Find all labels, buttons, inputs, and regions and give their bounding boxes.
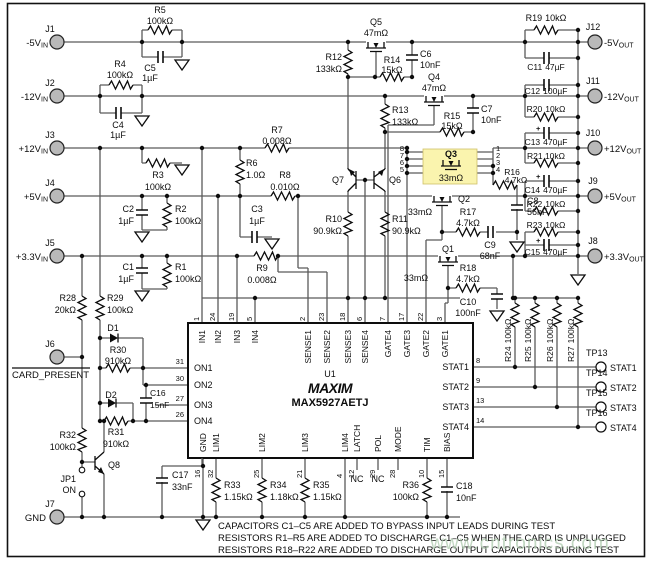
r8-ref: R8 — [279, 170, 291, 180]
note-line-1: CAPACITORS C1–C5 ARE ADDED TO BYPASS INP… — [218, 521, 555, 532]
ground-icon — [135, 116, 149, 126]
tp14-ref: TP14 — [586, 368, 608, 378]
circuit-schematic: J1 -5VIN J2 -12VIN J3 +12VIN J4 +5VIN J5… — [0, 0, 650, 563]
tp14-sig: STAT2 — [610, 383, 637, 393]
r34-val: 1.18kΩ — [270, 492, 299, 502]
r32-ref: R32 — [59, 430, 76, 440]
connector-j3 — [50, 141, 64, 155]
gnd-label: GND — [25, 513, 46, 524]
pin-name-gate4: GATE4 — [383, 330, 393, 358]
q7-ref: Q7 — [332, 175, 344, 185]
r8-val: 0.010Ω — [270, 182, 300, 192]
connector-j9 — [588, 189, 602, 203]
nc-label-latch: NC — [351, 474, 364, 484]
j9-ref: J9 — [588, 176, 598, 186]
c13-polarity: + — [536, 124, 541, 133]
c1-val: 1µF — [118, 274, 134, 284]
j8-label: +3.3VOUT — [604, 252, 645, 264]
pin-name-in2: IN2 — [213, 330, 223, 344]
r9-val: 0.008Ω — [247, 275, 277, 285]
ground-icon — [490, 311, 504, 321]
c9-ref: C9 — [484, 240, 496, 250]
schematic-page: J1 -5VIN J2 -12VIN J3 +12VIN J4 +5VIN J5… — [0, 0, 650, 563]
pin-num-9: 9 — [476, 376, 480, 385]
pin-num-25: 25 — [252, 470, 261, 478]
tp15-sig: STAT3 — [610, 403, 637, 413]
tp16-sig: STAT4 — [610, 423, 637, 433]
r18-val: 4.7kΩ — [456, 274, 480, 284]
jumper-jp1 — [79, 467, 85, 497]
q8-ref: Q8 — [108, 460, 120, 470]
diode-d1 — [110, 334, 118, 343]
pin-name-on2: ON2 — [194, 380, 213, 390]
c12-label: C12100µF — [525, 86, 568, 96]
r11-val: 90.9kΩ — [392, 226, 421, 236]
r22-label: R2210kΩ — [527, 199, 566, 209]
r15-val: 15kΩ — [441, 121, 463, 131]
r35-ref: R35 — [313, 480, 330, 490]
connector-j11 — [588, 89, 602, 103]
connector-j6 — [50, 350, 64, 364]
pin-name-stat1: STAT1 — [442, 362, 469, 372]
tp13-ref: TP13 — [586, 348, 608, 358]
pin-num-5: 5 — [245, 317, 254, 321]
c17-ref: C17 — [172, 470, 189, 480]
j5-ref: J5 — [45, 238, 55, 248]
c4-ref: C4 — [112, 120, 124, 130]
r19-label: R1910kΩ — [526, 13, 567, 23]
pin-num-3: 3 — [435, 317, 444, 321]
j6-ref: J6 — [45, 339, 55, 349]
q2-val: 33mΩ — [408, 207, 433, 217]
pin-num-8: 8 — [476, 356, 480, 365]
j2-ref: J2 — [45, 78, 55, 88]
pin-num-27: 27 — [176, 394, 184, 403]
q4-val: 47mΩ — [422, 83, 447, 93]
r12-ref: R12 — [325, 52, 342, 62]
pin-name-lim3: LIM3 — [300, 433, 310, 452]
q5-ref: Q5 — [370, 17, 382, 27]
r14-val: 15kΩ — [381, 65, 403, 75]
connector-j8 — [588, 249, 602, 263]
pin-name-gate1: GATE1 — [440, 330, 450, 358]
r12-val: 133kΩ — [316, 64, 343, 74]
c10-ref: C10 — [460, 297, 477, 307]
pin-name-lim2: LIM2 — [257, 433, 267, 452]
j10-ref: J10 — [586, 128, 601, 138]
ground-icon — [135, 291, 149, 301]
pin-name-gate2: GATE2 — [421, 330, 431, 358]
r28-val: 20kΩ — [55, 305, 77, 315]
r1-val: 100kΩ — [175, 274, 202, 284]
r36-ref: R36 — [402, 480, 419, 490]
connector-j4 — [50, 189, 64, 203]
d1-ref: D1 — [107, 323, 119, 333]
r5-val: 100kΩ — [147, 16, 174, 26]
ground-icon — [196, 520, 210, 530]
r2-ref: R2 — [175, 204, 187, 214]
q2-ref: Q2 — [458, 194, 470, 204]
r5-ref: R5 — [154, 5, 166, 15]
r34-ref: R34 — [270, 480, 287, 490]
r1-ref: R1 — [175, 262, 187, 272]
pin-num-31: 31 — [176, 357, 184, 366]
nc-label-pol: NC — [372, 474, 385, 484]
pin-name-gnd: GND — [198, 433, 208, 452]
r29-ref: R29 — [107, 293, 124, 303]
q1-ref: Q1 — [442, 244, 454, 254]
pin-num-30: 30 — [176, 374, 184, 383]
pin-num-4: 4 — [335, 474, 344, 478]
pin-num-21: 21 — [295, 470, 304, 478]
c18-ref: C18 — [456, 481, 473, 491]
pin-name-in3: IN3 — [232, 330, 242, 344]
pin-name-stat2: STAT2 — [442, 382, 469, 392]
c3-val: 1µF — [249, 216, 265, 226]
c13-label: C13470µF — [525, 137, 568, 147]
mosfet-q5 — [366, 42, 386, 52]
mosfet-q4 — [424, 96, 444, 106]
r24-label: R24100kΩ — [503, 319, 513, 362]
pin-name-mode: MODE — [393, 426, 403, 452]
output-connectors — [588, 35, 602, 263]
tp16-ref: TP16 — [586, 408, 608, 418]
j10-label: +12VOUT — [604, 144, 642, 156]
connector-j2 — [50, 89, 64, 103]
q3-pin-4: 4 — [496, 165, 500, 174]
c4-val: 1µF — [110, 130, 126, 140]
q3-val: 33mΩ — [439, 173, 464, 183]
c18-val: 10nF — [456, 493, 477, 503]
pin-name-on3: ON3 — [194, 400, 213, 410]
c6-ref: C6 — [420, 49, 432, 59]
pin-name-in1: IN1 — [197, 330, 207, 344]
j3-ref: J3 — [45, 130, 55, 140]
r4-val: 100kΩ — [107, 70, 134, 80]
connector-j1 — [50, 35, 64, 49]
connector-j12 — [588, 35, 602, 49]
pin-num-16: 16 — [193, 470, 202, 478]
pin-name-sense2: SENSE2 — [322, 330, 332, 364]
r16-val: 4.7kΩ — [505, 175, 527, 185]
ground-icon — [135, 232, 149, 242]
r35-val: 1.15kΩ — [313, 492, 342, 502]
r29-val: 100kΩ — [107, 305, 134, 315]
c15-label: C15470µF — [525, 247, 568, 257]
r10-val: 90.9kΩ — [313, 226, 342, 236]
r20-label: R2010kΩ — [527, 104, 566, 114]
c2-ref: C2 — [122, 204, 134, 214]
c1-ref: C1 — [122, 262, 134, 272]
r33-ref: R33 — [224, 480, 241, 490]
r30-val: 910kΩ — [105, 356, 132, 366]
q4-ref: Q4 — [428, 72, 440, 82]
maxim-logo: MAXIM — [308, 380, 353, 396]
ground-icon — [175, 165, 189, 175]
pin-name-sense4: SENSE4 — [360, 330, 370, 364]
r36-val: 100kΩ — [393, 492, 420, 502]
ic-ref: U1 — [324, 369, 336, 379]
j3-label: +12VIN — [19, 144, 48, 156]
c10-val: 100nF — [455, 308, 481, 318]
c14-polarity: + — [536, 172, 541, 181]
pin-name-on4: ON4 — [194, 416, 213, 426]
ground-icon — [571, 275, 585, 285]
r3-ref: R3 — [152, 170, 164, 180]
j7-ref: J7 — [45, 499, 55, 509]
c5-val: 1µF — [142, 73, 158, 83]
testpoint-labels: TP13 STAT1 TP14 STAT2 TP15 STAT3 TP16 ST… — [586, 348, 637, 433]
r32-val: 100kΩ — [50, 442, 77, 452]
mosfet-q2 — [432, 196, 452, 206]
watermark: www.cntronics.com — [429, 533, 610, 554]
r10-ref: R10 — [325, 214, 342, 224]
r6-ref: R6 — [246, 158, 258, 168]
ground-icon — [510, 242, 524, 252]
pin-name-stat3: STAT3 — [442, 402, 469, 412]
r9-ref: R9 — [256, 263, 268, 273]
j9-label: +5VOUT — [604, 192, 637, 204]
r13-ref: R13 — [392, 105, 409, 115]
r18-ref: R18 — [460, 263, 477, 273]
c14-label: C14470µF — [525, 185, 568, 195]
r31-ref: R31 — [108, 427, 125, 437]
r25-label: R25100kΩ — [523, 319, 533, 362]
r17-val: 4.7kΩ — [456, 218, 480, 228]
q1-val: 33mΩ — [404, 273, 429, 283]
c5-ref: C5 — [144, 63, 156, 73]
pin-num-26: 26 — [176, 410, 184, 419]
c9-val: 68nF — [480, 251, 501, 261]
q3-pin-5: 5 — [400, 165, 404, 174]
ic-part-number: MAX5927AETJ — [291, 397, 368, 409]
j8-ref: J8 — [588, 236, 598, 246]
q6-ref: Q6 — [389, 175, 401, 185]
pin-name-lim1: LIM1 — [211, 433, 221, 452]
r7-ref: R7 — [271, 125, 283, 135]
r28-ref: R28 — [59, 293, 76, 303]
c6-val: 10nF — [420, 60, 441, 70]
pin-num-7: 7 — [378, 317, 387, 321]
connector-j7 — [50, 510, 64, 524]
ground-icon — [175, 60, 189, 70]
r7-val: 0.008Ω — [262, 136, 292, 146]
pin-num-14: 14 — [476, 416, 484, 425]
r17-ref: R17 — [460, 207, 477, 217]
c3-ref: C3 — [251, 204, 263, 214]
testpoint-tp16 — [596, 422, 606, 432]
pin-num-6: 6 — [355, 317, 364, 321]
pin-name-lim4: LIM4 — [340, 433, 350, 452]
jp1-mode: ON — [63, 485, 77, 495]
pin-num-22: 22 — [416, 313, 425, 321]
c17-val: 33nF — [172, 482, 193, 492]
pin-name-sense3: SENSE3 — [343, 330, 353, 364]
r4-ref: R4 — [114, 59, 126, 69]
pin-num-23: 23 — [317, 313, 326, 321]
r31-val: 910kΩ — [103, 439, 130, 449]
r3-val: 100kΩ — [145, 182, 172, 192]
r15-ref: R15 — [444, 111, 461, 121]
r13-val: 133kΩ — [392, 117, 419, 127]
pin-name-tim: TIM — [422, 437, 432, 452]
j2-label: -12VIN — [21, 92, 48, 104]
tp13-sig: STAT1 — [610, 363, 637, 373]
ground-icon — [265, 239, 279, 249]
r2-val: 100kΩ — [175, 216, 202, 226]
pin-name-gate3: GATE3 — [402, 330, 412, 358]
j4-label: +5VIN — [24, 192, 48, 204]
pin-name-on1: ON1 — [194, 363, 213, 373]
j4-ref: J4 — [45, 178, 55, 188]
pin-name-bias: BIAS — [442, 432, 452, 452]
c16-ref: C16 — [150, 388, 166, 398]
c15-polarity: + — [536, 236, 541, 245]
pin-num-18: 18 — [338, 313, 347, 321]
pin-num-15: 15 — [437, 470, 446, 478]
pin-num-17: 17 — [397, 313, 406, 321]
j12-label: -5VOUT — [604, 38, 634, 50]
pin-num-13: 13 — [476, 396, 484, 405]
j11-ref: J11 — [586, 76, 600, 86]
connector-j10 — [588, 141, 602, 155]
r14-ref: R14 — [384, 55, 401, 65]
r23-label: R2310kΩ — [527, 220, 566, 230]
jp1-ref: JP1 — [60, 474, 76, 484]
pin-num-2: 2 — [298, 317, 307, 321]
r11-ref: R11 — [392, 214, 408, 224]
pin-name-latch: LATCH — [352, 425, 362, 452]
r27-label: R27100kΩ — [566, 319, 576, 362]
pin-num-32: 32 — [206, 470, 215, 478]
connector-j5 — [50, 249, 64, 263]
c11-label: C1147µF — [527, 62, 565, 72]
q3-ref: Q3 — [445, 149, 457, 159]
pin-name-stat4: STAT4 — [442, 422, 469, 432]
pin-num-24: 24 — [208, 313, 217, 321]
r26-label: R26100kΩ — [545, 319, 555, 362]
c7-ref: C7 — [481, 104, 493, 114]
pin-name-in4: IN4 — [250, 330, 260, 344]
tp15-ref: TP15 — [586, 388, 608, 398]
j12-ref: J12 — [586, 22, 601, 32]
j11-label: -12VOUT — [604, 92, 640, 104]
pin-name-pol: POL — [373, 435, 383, 452]
r33-val: 1.15kΩ — [224, 492, 253, 502]
r21-label: R2110kΩ — [527, 151, 565, 161]
pin-name-sense1: SENSE1 — [303, 330, 313, 364]
c16-val: 15nF — [150, 400, 169, 410]
pin-num-28: 28 — [388, 470, 397, 478]
r30-ref: R30 — [110, 345, 127, 355]
j1-ref: J1 — [45, 24, 55, 34]
j1-label: -5VIN — [26, 38, 48, 50]
pin-num-1: 1 — [192, 317, 201, 321]
card-present-label: CARD_PRESENT — [12, 370, 89, 381]
c7-val: 10nF — [481, 115, 502, 125]
d2-ref: D2 — [105, 390, 117, 400]
q5-val: 47mΩ — [364, 28, 389, 38]
pin-num-19: 19 — [227, 313, 236, 321]
mosfet-q1 — [438, 256, 458, 266]
c2-val: 1µF — [118, 216, 134, 226]
pin-num-10: 10 — [417, 470, 426, 478]
r6-val: 1.0Ω — [246, 170, 266, 180]
j5-label: +3.3VIN — [16, 252, 48, 264]
